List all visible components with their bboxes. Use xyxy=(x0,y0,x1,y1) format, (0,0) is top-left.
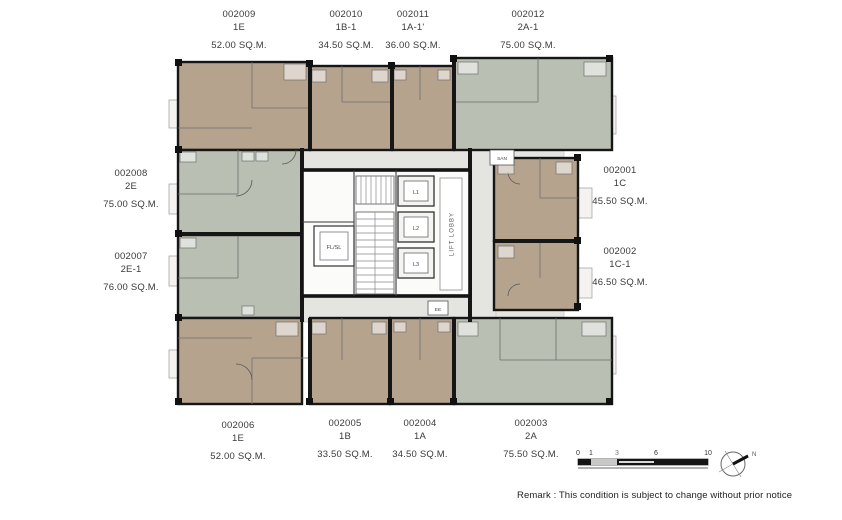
unit-area: 52.00 SQ.M. xyxy=(210,450,266,463)
floor-plan-page: FL/SL L1 L2 L3 LIFT LOBBY xyxy=(0,0,842,520)
unit-area: 45.50 SQ.M. xyxy=(592,195,648,208)
unit-type: 1B xyxy=(317,430,373,443)
compass-north-label: N xyxy=(752,452,756,458)
remark-text: Remark : This condition is subject to ch… xyxy=(517,490,792,501)
unit-area: 52.00 SQ.M. xyxy=(211,39,267,52)
unit-area: 76.00 SQ.M. xyxy=(103,281,159,294)
unit-type: 2E xyxy=(103,180,159,193)
san-shaft: SAN xyxy=(490,150,514,165)
scale-tick-1: 1 xyxy=(589,450,593,457)
lift-lobby: LIFT LOBBY xyxy=(440,178,462,290)
unit-2E xyxy=(178,150,302,235)
stair-top xyxy=(356,176,394,204)
unit-label-002006: 002006 1E 52.00 SQ.M. xyxy=(210,419,266,463)
unit-type: 1A xyxy=(392,430,448,443)
unit-label-002011: 002011 1A-1' 36.00 SQ.M. xyxy=(385,8,441,52)
unit-area: 34.50 SQ.M. xyxy=(392,448,448,461)
unit-type: 1E xyxy=(210,432,266,445)
unit-type: 1B-1 xyxy=(318,21,374,34)
compass-icon: N xyxy=(719,451,756,477)
unit-type: 2A xyxy=(503,430,559,443)
lift-lobby-label: LIFT LOBBY xyxy=(450,212,456,256)
unit-area: 75.00 SQ.M. xyxy=(500,39,556,52)
san-shaft-label: SAN xyxy=(497,156,507,162)
lift-l3: L3 xyxy=(398,248,434,278)
unit-label-002004: 002004 1A 34.50 SQ.M. xyxy=(392,417,448,461)
unit-label-002005: 002005 1B 33.50 SQ.M. xyxy=(317,417,373,461)
unit-area: 36.00 SQ.M. xyxy=(385,39,441,52)
unit-type: 2E-1 xyxy=(103,263,159,276)
lift-l2-label: L2 xyxy=(413,226,419,232)
lift-l1: L1 xyxy=(398,176,434,206)
unit-type: 1C xyxy=(592,177,648,190)
scale-tick-10: 10 xyxy=(704,450,712,457)
unit-label-002002: 002002 1C-1 46.50 SQ.M. xyxy=(592,245,648,289)
unit-area: 33.50 SQ.M. xyxy=(317,448,373,461)
unit-id: 002005 xyxy=(317,417,373,430)
unit-id: 002007 xyxy=(103,250,159,263)
unit-label-002009: 002009 1E 52.00 SQ.M. xyxy=(211,8,267,52)
scale-tick-6: 6 xyxy=(654,450,658,457)
unit-id: 002011 xyxy=(385,8,441,21)
scale-bar: 0 1 3 6 10 xyxy=(576,450,712,468)
ee-shaft: EE xyxy=(428,301,448,315)
unit-id: 002002 xyxy=(592,245,648,258)
ee-shaft-label: EE xyxy=(435,307,441,313)
unit-id: 002010 xyxy=(318,8,374,21)
unit-type: 1A-1' xyxy=(385,21,441,34)
unit-label-002012: 002012 2A-1 75.00 SQ.M. xyxy=(500,8,556,52)
unit-area: 75.50 SQ.M. xyxy=(503,448,559,461)
scale-tick-0: 0 xyxy=(576,450,580,457)
unit-label-002003: 002003 2A 75.50 SQ.M. xyxy=(503,417,559,461)
stair-main xyxy=(356,212,394,294)
unit-id: 002009 xyxy=(211,8,267,21)
fire-lift-label: FL/SL xyxy=(327,245,342,251)
unit-label-002001: 002001 1C 45.50 SQ.M. xyxy=(592,164,648,208)
unit-id: 002008 xyxy=(103,167,159,180)
unit-label-002007: 002007 2E-1 76.00 SQ.M. xyxy=(103,250,159,294)
unit-label-002010: 002010 1B-1 34.50 SQ.M. xyxy=(318,8,374,52)
unit-id: 002001 xyxy=(592,164,648,177)
unit-type: 2A-1 xyxy=(500,21,556,34)
unit-id: 002004 xyxy=(392,417,448,430)
unit-area: 75.00 SQ.M. xyxy=(103,198,159,211)
fire-lift: FL/SL xyxy=(314,226,354,266)
lift-l3-label: L3 xyxy=(413,262,419,268)
unit-id: 002012 xyxy=(500,8,556,21)
lift-l1-label: L1 xyxy=(413,190,419,196)
unit-2E-1 xyxy=(178,235,302,318)
unit-type: 1C-1 xyxy=(592,258,648,271)
lift-l2: L2 xyxy=(398,212,434,242)
unit-id: 002006 xyxy=(210,419,266,432)
unit-label-002008: 002008 2E 75.00 SQ.M. xyxy=(103,167,159,211)
unit-id: 002003 xyxy=(503,417,559,430)
unit-area: 46.50 SQ.M. xyxy=(592,276,648,289)
unit-type: 1E xyxy=(211,21,267,34)
unit-area: 34.50 SQ.M. xyxy=(318,39,374,52)
scale-tick-3: 3 xyxy=(615,450,619,457)
